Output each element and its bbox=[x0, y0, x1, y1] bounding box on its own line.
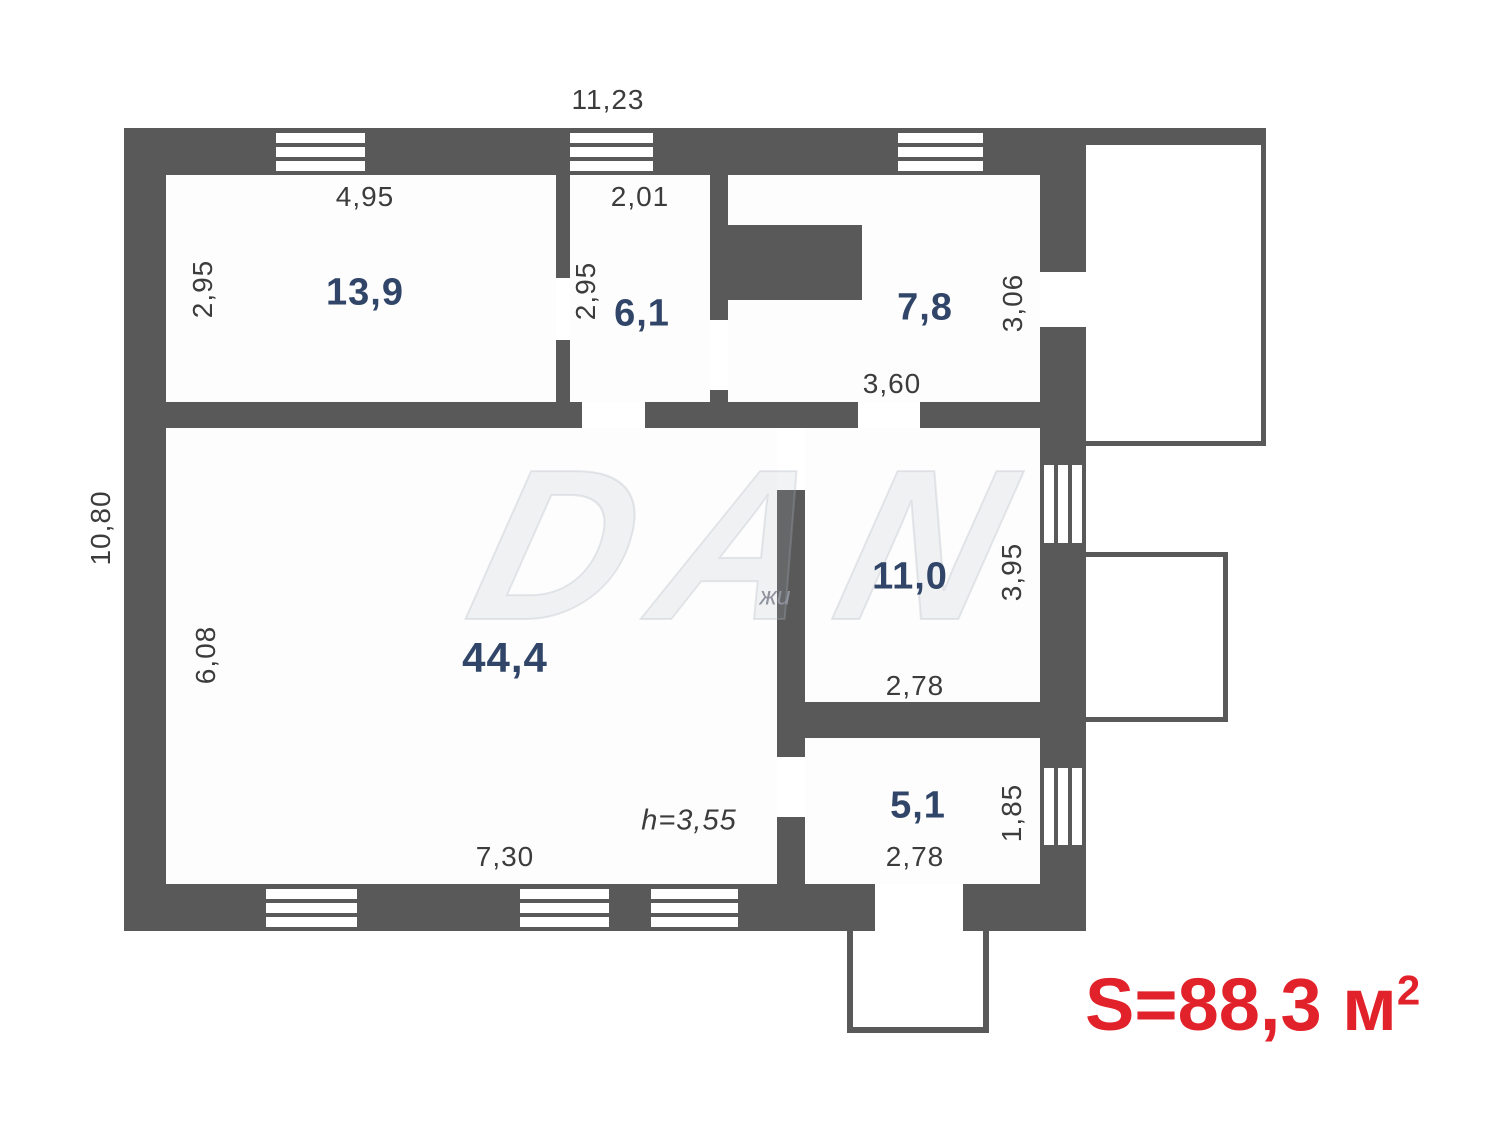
entrance-door bbox=[875, 884, 963, 931]
porch-bottom bbox=[847, 931, 989, 1033]
window-room-44-4-mid bbox=[520, 889, 609, 927]
room-13-9-height-label: 2,95 bbox=[187, 260, 219, 319]
window-room-44-4-left bbox=[266, 889, 357, 927]
room-11-0-area-label: 11,0 bbox=[872, 556, 948, 599]
window-room-11-0 bbox=[1044, 465, 1082, 543]
room-44-4-width-label: 7,30 bbox=[476, 841, 535, 873]
room-44-4-area-label: 44,4 bbox=[462, 634, 548, 682]
window-room-5-1 bbox=[1044, 768, 1082, 845]
porch-top-right bbox=[1086, 128, 1266, 446]
room-7-8-width-label: 3,60 bbox=[863, 368, 922, 400]
floor-plan: DAN жи 11,23 10,80 4,95 2,95 13,9 2,01 2… bbox=[0, 0, 1500, 1125]
window-room-7-8 bbox=[898, 133, 983, 171]
room-7-8-height-label: 3,06 bbox=[997, 274, 1029, 333]
ceiling-height-label: h=3,55 bbox=[641, 805, 737, 838]
room-6-1-width-label: 2,01 bbox=[611, 181, 670, 213]
total-area-value: S=88,3 м bbox=[1085, 963, 1397, 1046]
door-7-8-to-porch bbox=[1040, 272, 1086, 327]
room-5-1-area-label: 5,1 bbox=[890, 785, 946, 828]
room-7-8-area-label: 7,8 bbox=[897, 287, 953, 330]
room-5-1-width-label: 2,78 bbox=[886, 841, 945, 873]
porch-right bbox=[1086, 552, 1228, 722]
stove-block bbox=[728, 225, 862, 300]
window-room-6-1 bbox=[570, 133, 653, 171]
room-11-0-height-label: 3,95 bbox=[996, 543, 1028, 602]
room-5-1-height-label: 1,85 bbox=[996, 784, 1028, 843]
room-13-9-width-label: 4,95 bbox=[336, 181, 395, 213]
door-13-9-to-6-1 bbox=[556, 278, 570, 340]
outer-width-label: 11,23 bbox=[572, 84, 645, 116]
outer-height-label: 10,80 bbox=[85, 490, 117, 565]
room-11-0-width-label: 2,78 bbox=[886, 670, 945, 702]
room-6-1-area-label: 6,1 bbox=[614, 293, 670, 336]
total-area-label: S=88,3 м2 bbox=[1085, 962, 1420, 1047]
room-13-9-area-label: 13,9 bbox=[326, 272, 404, 315]
watermark-text: жи bbox=[759, 583, 790, 612]
window-room-13-9 bbox=[276, 133, 365, 171]
total-area-sup: 2 bbox=[1397, 966, 1420, 1013]
window-room-44-4-right bbox=[651, 889, 738, 927]
room-6-1-height-label: 2,95 bbox=[570, 262, 602, 321]
door-44-4-to-5-1 bbox=[777, 757, 805, 817]
room-44-4-height-label: 6,08 bbox=[190, 626, 222, 685]
door-6-1-to-7-8 bbox=[710, 320, 728, 390]
watermark-logo: DAN bbox=[449, 421, 1061, 669]
